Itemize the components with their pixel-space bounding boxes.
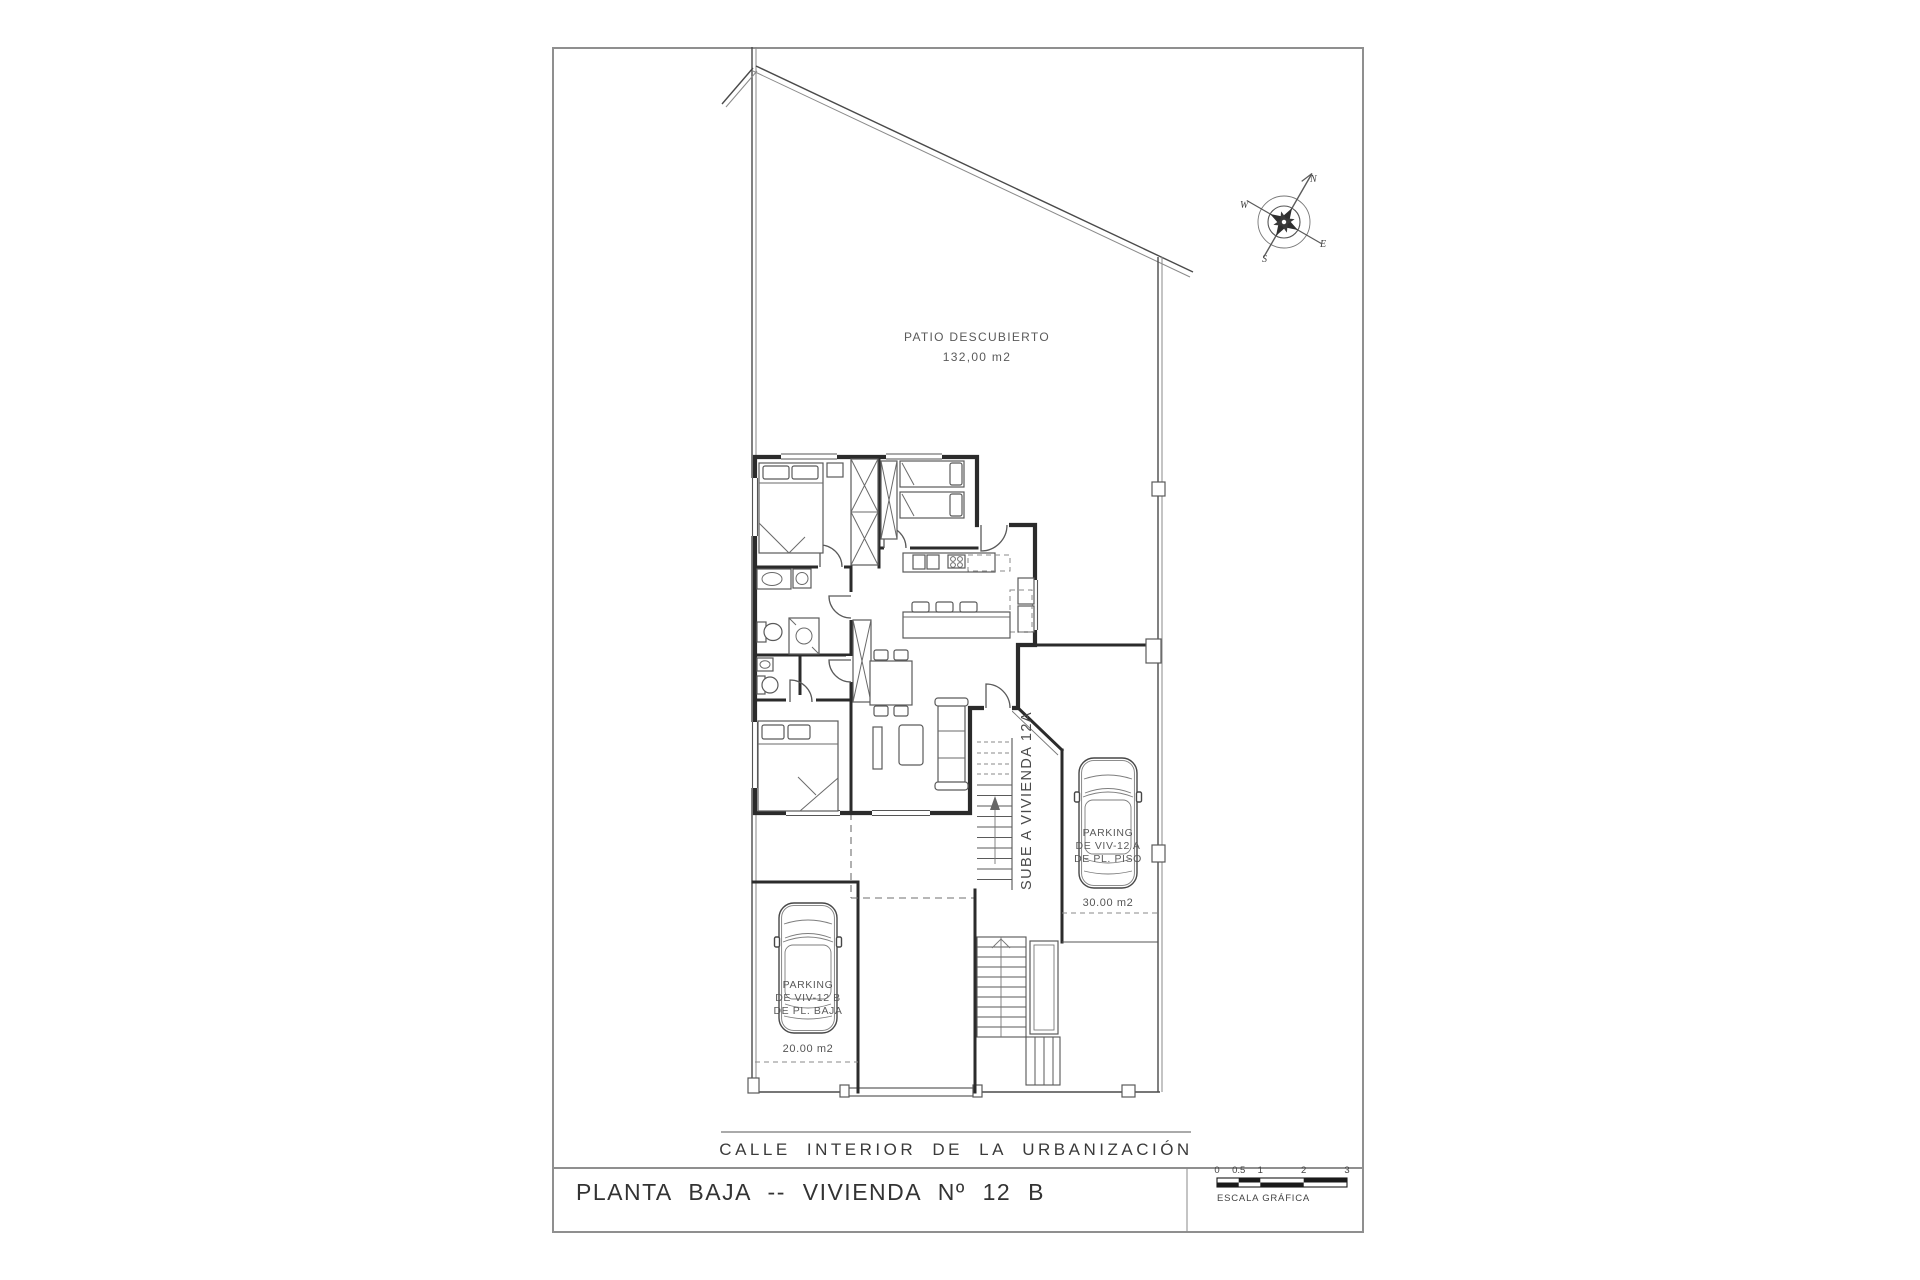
patio-name: PATIO DESCUBIERTO — [904, 330, 1050, 344]
sheet-title: PLANTA BAJA -- VIVIENDA Nº 12 B — [576, 1179, 1045, 1205]
parking-right-line1: PARKING — [1083, 827, 1134, 839]
bed-twin-b — [900, 492, 964, 518]
patio-area: 132,00 m2 — [943, 350, 1011, 364]
parking-right-line3: DE PL. PISO — [1074, 853, 1142, 865]
closet-1 — [851, 459, 878, 565]
parking-right-area: 30.00 m2 — [1083, 897, 1134, 909]
sofa — [935, 698, 968, 790]
compass-north: N — [1309, 174, 1318, 185]
parking-left-line2: DE VIV-12 B — [775, 992, 841, 1004]
parking-left-area: 20.00 m2 — [783, 1043, 834, 1055]
tv-unit — [873, 727, 882, 769]
coffee-table — [899, 725, 923, 765]
scale-tick-2: 2 — [1301, 1165, 1306, 1176]
scale-tick-1: 1 — [1258, 1165, 1263, 1176]
closet-3 — [853, 620, 871, 702]
scale-tick-3: 3 — [1344, 1165, 1349, 1176]
street-label: CALLE INTERIOR DE LA URBANIZACIÓN — [719, 1140, 1192, 1159]
parking-left-line1: PARKING — [783, 979, 834, 991]
floor-plan-sheet: PATIO DESCUBIERTO 132,00 m2 — [0, 0, 1920, 1280]
title-block: PLANTA BAJA -- VIVIENDA Nº 12 B — [576, 1179, 1045, 1205]
compass-east: E — [1319, 239, 1326, 250]
scale-label: ESCALA GRÁFICA — [1217, 1193, 1310, 1204]
parking-right-line2: DE VIV-12 A — [1076, 840, 1141, 852]
compass-south: S — [1262, 254, 1267, 265]
parking-left-line3: DE PL. BAJA — [773, 1005, 842, 1017]
bed-double-2 — [758, 721, 838, 811]
bed-twin-a — [900, 461, 964, 487]
scale-tick-05: 0.5 — [1232, 1165, 1245, 1176]
scale-tick-0: 0 — [1214, 1165, 1219, 1176]
closet-2 — [881, 461, 897, 539]
stair-label: SUBE A VIVIENDA 12A — [1019, 711, 1035, 890]
